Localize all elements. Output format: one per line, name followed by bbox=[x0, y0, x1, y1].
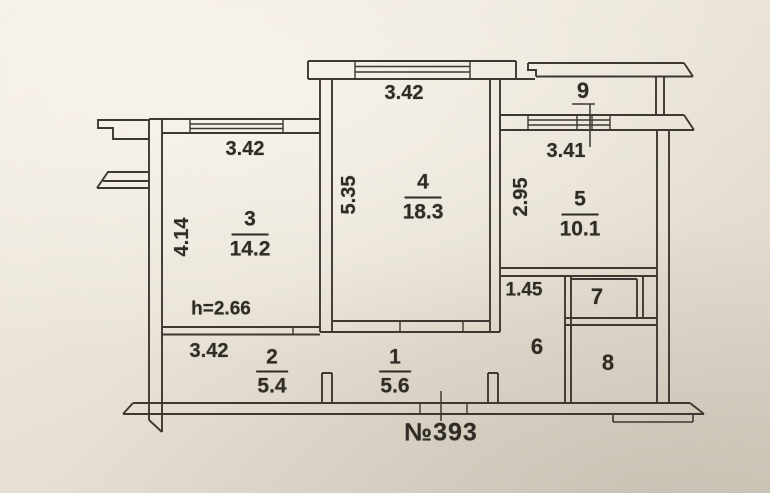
dim-room5-width: 3.41 bbox=[547, 141, 586, 161]
room-4-number: 4 bbox=[404, 170, 442, 199]
wall-room4-top bbox=[308, 61, 535, 79]
room-1-area: 5.6 bbox=[380, 373, 409, 397]
room-label-1: 1 5.6 bbox=[379, 346, 411, 397]
wall-room4-right bbox=[490, 79, 500, 332]
floorplan-drawing bbox=[0, 0, 770, 493]
wall-room7 bbox=[571, 276, 643, 318]
dim-room3-width: 3.42 bbox=[226, 139, 265, 159]
room-4-area: 18.3 bbox=[403, 199, 444, 223]
wall-room5-top bbox=[500, 115, 694, 130]
room-5-number: 5 bbox=[561, 187, 599, 216]
room-3-area: 14.2 bbox=[230, 236, 271, 260]
room-label-3: 3 14.2 bbox=[230, 207, 271, 260]
room-2-number: 2 bbox=[256, 346, 288, 373]
dim-room4-depth: 5.35 bbox=[339, 176, 359, 215]
dim-closet-width: 1.45 bbox=[506, 281, 543, 300]
left-protrusion-lower bbox=[97, 172, 149, 188]
room-label-7: 7 bbox=[591, 286, 603, 308]
wall-hall-top bbox=[162, 321, 500, 335]
balcony-rail-top bbox=[528, 63, 693, 77]
wall-room5-bottom bbox=[500, 268, 657, 276]
wall-right-exterior bbox=[657, 130, 669, 403]
dim-hall-width: 3.42 bbox=[190, 341, 229, 361]
floorplan-photo: 3.42 3.42 9 3.41 5.35 4 18.3 2.95 5 10.1… bbox=[0, 0, 770, 493]
room-1-number: 1 bbox=[379, 346, 411, 373]
room-3-number: 3 bbox=[231, 207, 269, 236]
wall-left-exterior bbox=[149, 119, 162, 432]
wall-room4-left bbox=[320, 79, 332, 332]
room-label-6: 6 bbox=[531, 336, 543, 358]
left-protrusion-upper bbox=[98, 120, 149, 139]
room-label-8: 8 bbox=[602, 352, 614, 374]
door-stub-hall2 bbox=[322, 373, 332, 403]
door-stub-hall1 bbox=[488, 373, 498, 403]
dim-room5-depth: 2.95 bbox=[511, 178, 531, 217]
apartment-number-label: №393 bbox=[404, 421, 478, 446]
wall-room6-right bbox=[565, 276, 571, 403]
room-label-4: 4 18.3 bbox=[403, 170, 444, 223]
room-5-area: 10.1 bbox=[560, 216, 601, 240]
room-label-9: 9 bbox=[577, 80, 589, 102]
balcony-rail-side bbox=[656, 77, 664, 116]
dim-room3-depth: 4.14 bbox=[172, 218, 192, 257]
dim-room4-width: 3.42 bbox=[385, 83, 424, 103]
wall-room3-top bbox=[149, 119, 320, 133]
room-label-5: 5 10.1 bbox=[560, 187, 601, 240]
ceiling-height-label: h=2.66 bbox=[191, 300, 251, 319]
room-2-area: 5.4 bbox=[257, 373, 286, 397]
room-label-2: 2 5.4 bbox=[256, 346, 288, 397]
wall-room8-top bbox=[565, 318, 657, 325]
wall-bottom-exterior bbox=[123, 391, 704, 422]
